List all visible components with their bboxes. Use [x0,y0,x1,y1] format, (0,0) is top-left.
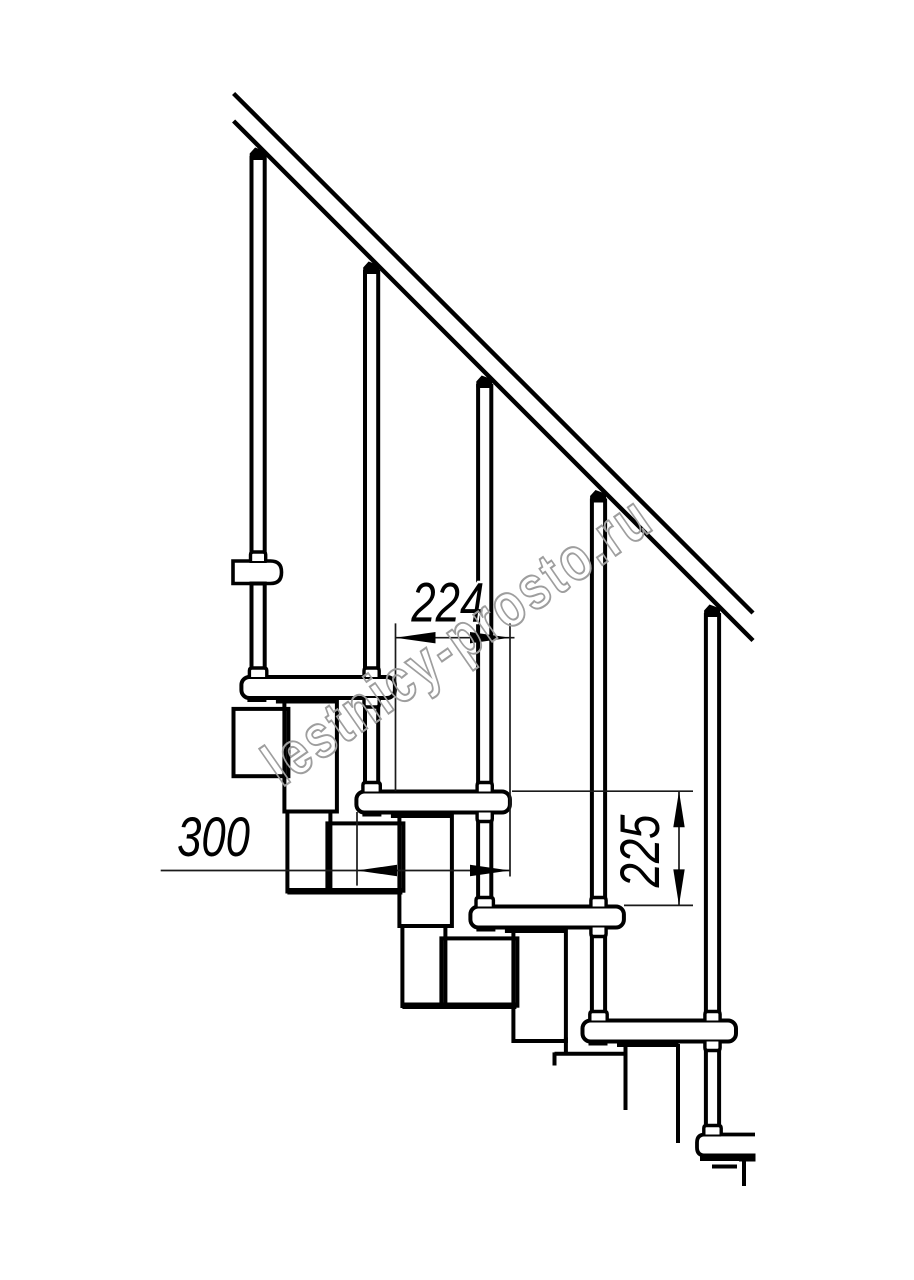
svg-text:300: 300 [177,806,250,868]
svg-text:225: 225 [609,814,671,889]
